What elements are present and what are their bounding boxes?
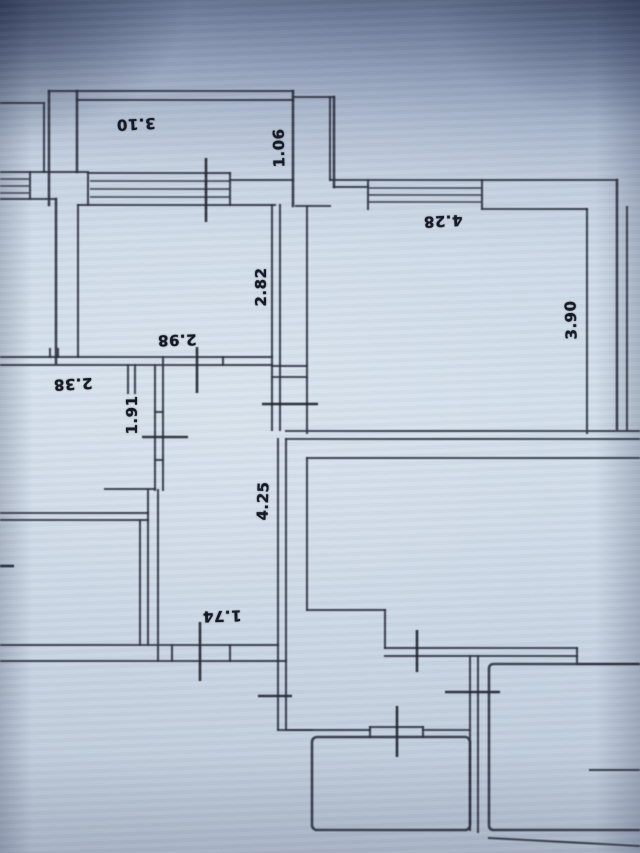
right-room-walls bbox=[286, 180, 640, 439]
dimension-label-1-91: 1.91 bbox=[123, 395, 141, 434]
upper-room-window-hatch bbox=[78, 158, 293, 222]
bottom-middle-room bbox=[286, 706, 470, 830]
lower-right-room-walls bbox=[307, 458, 640, 832]
dimension-label-2-98: 2.98 bbox=[157, 330, 197, 349]
dimension-label-2-38: 2.38 bbox=[53, 374, 93, 394]
dimension-label-1-06: 1.06 bbox=[270, 128, 289, 167]
dimension-label-3-10: 3.10 bbox=[116, 114, 156, 134]
floor-plan: 3.10 1.06 4.28 2.82 3.90 2.98 2.38 1.91 … bbox=[0, 0, 640, 853]
dimension-label-2-82: 2.82 bbox=[252, 267, 270, 306]
balcony-walls bbox=[0, 91, 293, 205]
dimension-label-4-25: 4.25 bbox=[253, 481, 272, 521]
dimension-label-1-74: 1.74 bbox=[202, 606, 242, 625]
floorplan-photo: 3.10 1.06 4.28 2.82 3.90 2.98 2.38 1.91 … bbox=[0, 0, 640, 853]
left-edge-window-hatch bbox=[0, 179, 30, 193]
upper-room-walls bbox=[0, 199, 318, 433]
right-room-window-hatch bbox=[368, 180, 587, 209]
floor-plan-drawing bbox=[0, 0, 640, 853]
dimension-label-4-28: 4.28 bbox=[423, 211, 463, 231]
dimension-label-3-90: 3.90 bbox=[561, 300, 580, 340]
hall-walls bbox=[0, 365, 286, 681]
bottom-right-room bbox=[489, 664, 640, 846]
